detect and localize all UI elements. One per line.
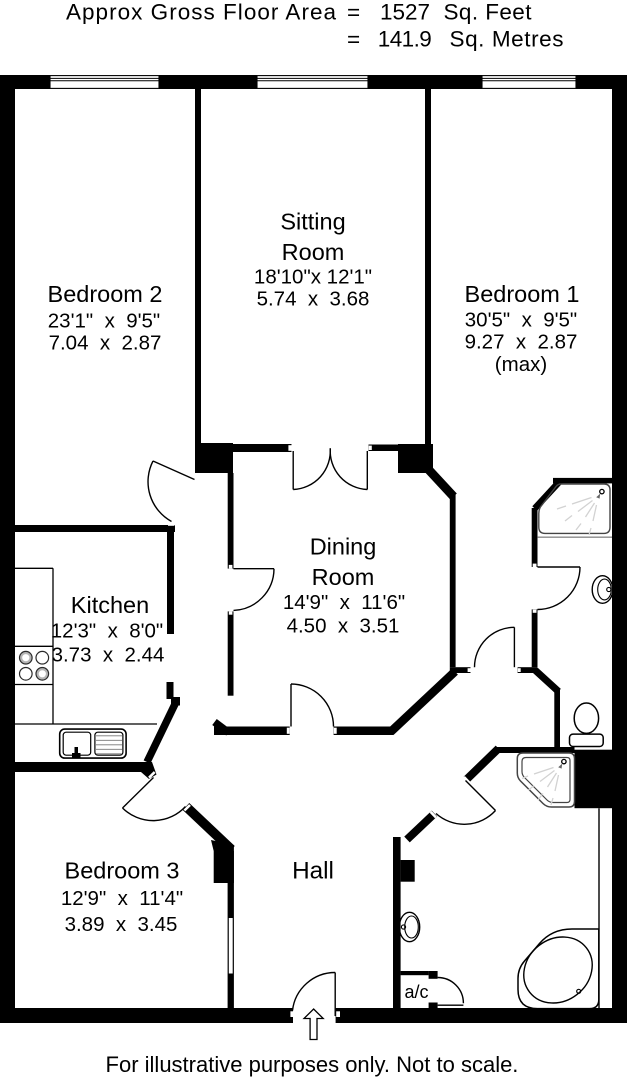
- svg-text:141.9: 141.9: [378, 27, 432, 52]
- svg-text:Bedroom 2: Bedroom 2: [48, 281, 163, 307]
- svg-text:14'9" x 11'6": 14'9" x 11'6": [283, 591, 405, 614]
- svg-text:Sitting: Sitting: [280, 209, 345, 235]
- svg-text:3.73 x 2.44: 3.73 x 2.44: [52, 644, 165, 667]
- svg-text:7.04 x 2.87: 7.04 x 2.87: [49, 332, 162, 355]
- svg-text:4.50 x 3.51: 4.50 x 3.51: [287, 615, 400, 638]
- svg-text:Sq. Metres: Sq. Metres: [450, 27, 564, 52]
- svg-text:Kitchen: Kitchen: [71, 592, 149, 618]
- svg-text:5.74 x 3.68: 5.74 x 3.68: [257, 288, 370, 311]
- svg-text:Approx Gross Floor Area: Approx Gross Floor Area: [66, 0, 336, 25]
- svg-text:=: =: [347, 0, 360, 25]
- svg-text:Bedroom 1: Bedroom 1: [465, 281, 580, 307]
- svg-text:Sq. Feet: Sq. Feet: [444, 0, 533, 25]
- svg-text:18'10"x 12'1": 18'10"x 12'1": [254, 266, 372, 289]
- svg-text:12'9" x 11'4": 12'9" x 11'4": [61, 887, 183, 910]
- svg-text:Room: Room: [282, 239, 345, 265]
- svg-text:23'1" x 9'5": 23'1" x 9'5": [48, 310, 160, 333]
- svg-text:(max): (max): [495, 353, 547, 376]
- svg-text:Bedroom 3: Bedroom 3: [65, 858, 180, 884]
- svg-text:1527: 1527: [380, 0, 430, 25]
- svg-text:12'3" x 8'0": 12'3" x 8'0": [51, 620, 163, 643]
- svg-text:=: =: [347, 27, 360, 52]
- svg-text:a/c: a/c: [404, 982, 428, 1002]
- svg-text:Hall: Hall: [292, 858, 334, 885]
- svg-text:For illustrative purposes only: For illustrative purposes only. Not to s…: [106, 1052, 519, 1077]
- svg-text:3.89 x 3.45: 3.89 x 3.45: [65, 913, 178, 936]
- svg-text:9.27 x 2.87: 9.27 x 2.87: [465, 331, 578, 354]
- svg-text:30'5" x 9'5": 30'5" x 9'5": [465, 309, 577, 332]
- svg-text:Room: Room: [312, 564, 375, 590]
- svg-text:Dining: Dining: [310, 534, 377, 560]
